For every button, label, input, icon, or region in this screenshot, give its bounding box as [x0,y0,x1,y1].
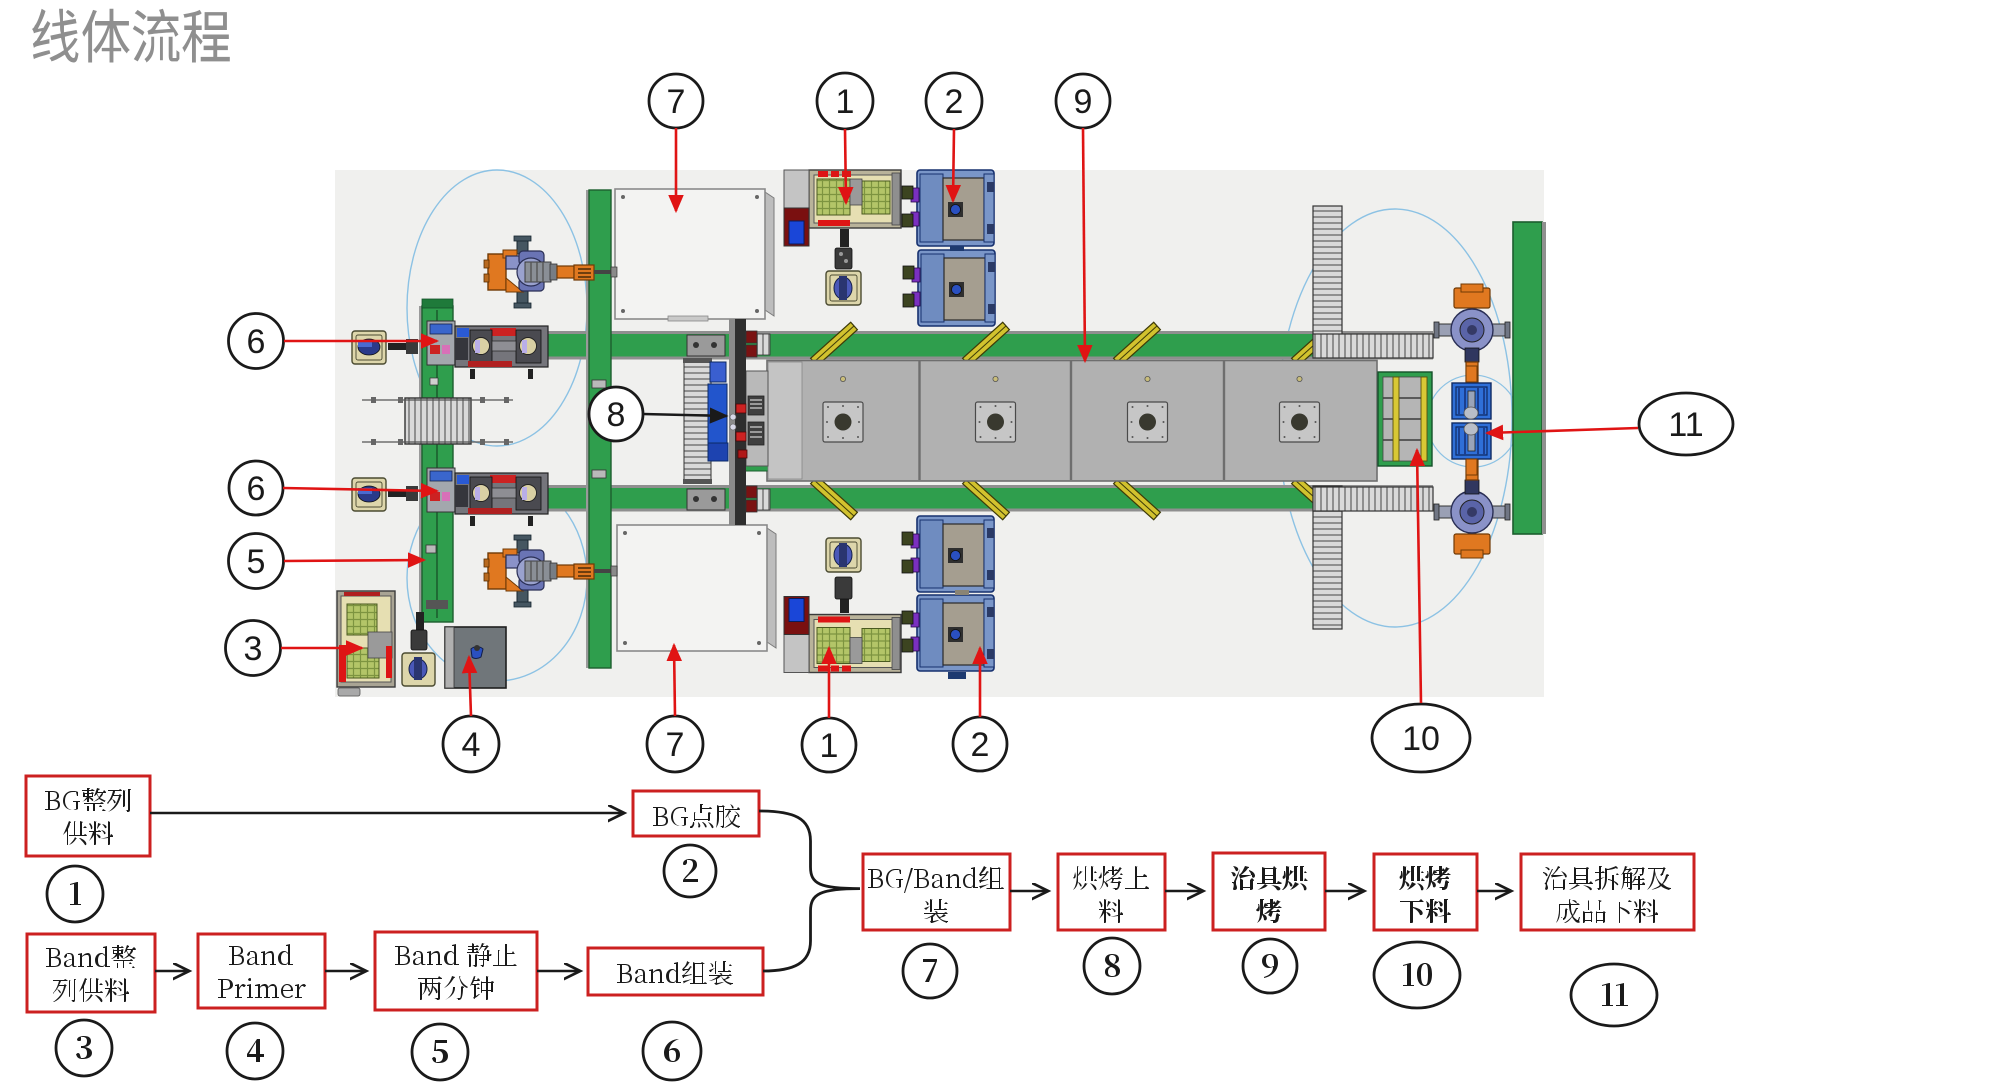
svg-text:7: 7 [666,726,685,764]
svg-text:1: 1 [820,727,839,765]
svg-text:4: 4 [462,726,481,764]
svg-text:8: 8 [607,396,626,434]
svg-text:1: 1 [836,83,855,121]
svg-text:6: 6 [247,323,266,361]
svg-text:6: 6 [247,470,266,508]
svg-text:2: 2 [971,726,990,764]
svg-text:9: 9 [1074,83,1093,121]
svg-text:5: 5 [247,543,266,581]
svg-text:7: 7 [667,83,686,121]
svg-text:11: 11 [1668,406,1703,444]
svg-text:10: 10 [1402,720,1440,758]
svg-text:3: 3 [244,630,263,668]
svg-text:2: 2 [945,83,964,121]
